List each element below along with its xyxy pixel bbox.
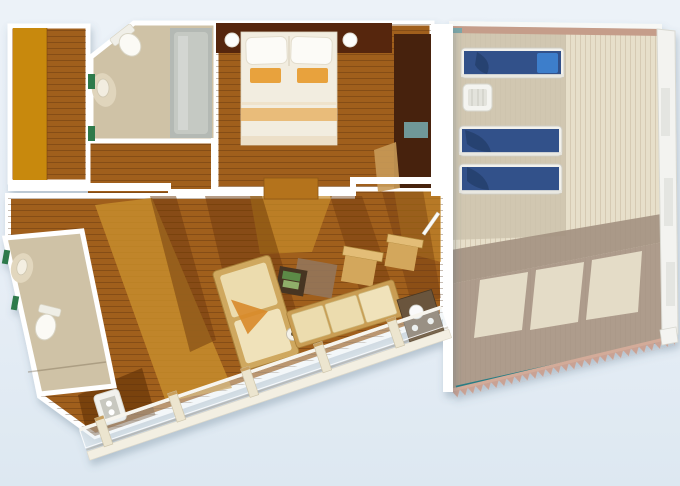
bedside-lamp-right <box>343 33 357 47</box>
sun-lounger-3 <box>459 164 562 194</box>
balcony-right-railing-panel-1 <box>661 88 670 136</box>
bed-pillow-left <box>246 36 288 64</box>
wall-closet-bottom <box>8 183 171 191</box>
balcony-light-window-3 <box>586 251 642 320</box>
walk-in-closet <box>10 26 88 182</box>
bathtub-highlight <box>178 36 188 130</box>
closet-wardrobe-strip <box>13 28 47 180</box>
balcony-corner-teal-chip <box>452 28 462 33</box>
armchair-right-seat <box>341 255 377 286</box>
floorplan-image <box>0 0 680 486</box>
double-bed <box>241 32 337 145</box>
bathroom-upper-shelf-2 <box>88 126 95 141</box>
suite-interior <box>2 23 453 460</box>
bed-foot-stripe <box>241 108 337 121</box>
balcony-light-window-2 <box>530 262 584 330</box>
armchair-upper-seat <box>384 242 418 271</box>
bedside-lamp-left <box>225 33 239 47</box>
bathroom-upper-shelf-1 <box>88 74 95 89</box>
sink-upper-basin <box>97 79 109 97</box>
sun-lounger-3-armrest <box>459 190 562 193</box>
bed-pillow-right <box>291 36 333 64</box>
wall-bedroom-balcony <box>431 24 444 196</box>
sideboard-top <box>264 178 318 199</box>
bed-foot-stripe-thin <box>241 136 337 145</box>
bathroom-lower-shelf-2 <box>11 296 19 311</box>
bed-fold-line <box>241 102 337 105</box>
bedroom <box>216 23 432 192</box>
balcony-deck <box>449 21 678 398</box>
balcony-right-railing-panel-3 <box>666 262 675 306</box>
wall-bedroom-left <box>211 138 218 194</box>
wall-living-top-left <box>168 189 354 196</box>
sun-lounger-1-pillow <box>537 53 558 73</box>
closet-floor-planks <box>47 28 86 180</box>
bed-accent-pillow-left <box>250 68 281 83</box>
wall-living-top-jog <box>350 177 356 196</box>
sun-lounger-2-armrest <box>459 152 562 155</box>
balcony-corner-bracket <box>660 327 678 345</box>
tv-screen <box>404 122 428 138</box>
sun-lounger-2 <box>459 126 562 156</box>
sun-lounger-1-armrest <box>461 74 564 77</box>
bathroom-upper <box>88 23 216 141</box>
balcony-light-window-1 <box>474 272 528 338</box>
tv-cabinet <box>394 34 432 188</box>
floorplan-svg <box>0 0 680 486</box>
lounger-side-table <box>463 84 492 111</box>
bedroom-chair <box>374 142 400 192</box>
balcony-right-railing-panel-2 <box>664 178 673 226</box>
sun-lounger-1 <box>461 48 564 78</box>
bed-accent-pillow-right <box>297 68 328 83</box>
